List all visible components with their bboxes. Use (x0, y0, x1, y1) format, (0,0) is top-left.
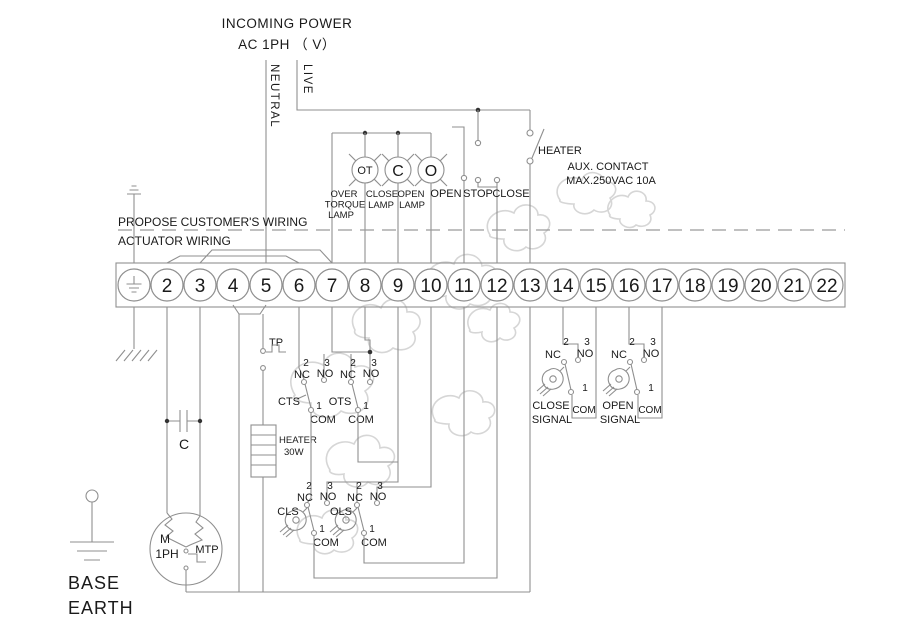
jumper-4-5-icon (233, 305, 266, 314)
torque-switches: 2 3 NC NO CTS 1 COM 2 3 NC NO OTS 1 COM (278, 307, 398, 502)
contact-label: NC (545, 349, 561, 361)
contact-number: 1 (369, 524, 375, 535)
terminal-number: 8 (360, 276, 371, 297)
contact-label: NC (340, 369, 356, 381)
tp-contact-top (261, 349, 266, 354)
lamp-caption: CLOSE (366, 189, 398, 200)
close-signal-label: CLOSE (532, 400, 569, 412)
open-button-contact (461, 175, 466, 180)
wiring-boundary: PROPOSE CUSTOMER'S WIRING ACTUATOR WIRIN… (118, 215, 845, 248)
contact-label: COM (348, 414, 374, 426)
terminal15-com-wire (572, 307, 596, 418)
stop-button-contact-top (475, 140, 480, 145)
contact-label: NO (643, 348, 660, 360)
terminal-number: 19 (717, 276, 738, 297)
contact-number: 2 (350, 358, 356, 369)
contact-label: NO (577, 348, 594, 360)
terminal-number: 18 (684, 276, 705, 297)
terminal-number: 6 (294, 276, 305, 297)
incoming-power-rating: AC 1PH （ V） (238, 37, 336, 52)
contact-number: 2 (356, 481, 362, 492)
aux-contact-title: AUX. CONTACT (567, 161, 648, 173)
mtp-contact-bottom (184, 566, 188, 570)
heater-resistor: HEATER 30W (251, 425, 317, 477)
heater-resistor-hatch-icon (251, 435, 276, 465)
contact-number: 1 (363, 401, 369, 412)
open-button-upper-wire (452, 127, 464, 175)
stop-button-contact-bottom (475, 177, 480, 182)
heater-switch-label: HEATER (538, 145, 582, 157)
contact-label: COM (572, 405, 595, 416)
junction-dot (198, 419, 202, 423)
close-signal-switch: 2 3 NC NO 1 COM CLOSE SIGNAL (532, 307, 596, 426)
indicator-lamps: OT OVER TORQUE LAMP C CLOSE LAMP O OPEN … (325, 131, 447, 263)
heater-switch-contact-bottom (527, 158, 533, 164)
cts-switch: 2 3 NC NO CTS 1 COM (278, 358, 336, 426)
live-label: LIVE (301, 64, 313, 95)
terminal-earth (118, 269, 150, 301)
lamp-symbol: OT (357, 165, 373, 177)
cls-blade (308, 507, 314, 531)
contact-number: 3 (650, 337, 656, 348)
contact-label: NC (611, 349, 627, 361)
contact-label: COM (313, 537, 339, 549)
base-earth-icon (70, 542, 114, 560)
stop-close-link-wire (478, 183, 497, 187)
close-signal-com-contact (569, 390, 574, 395)
push-buttons: OPEN STOP CLOSE (430, 110, 529, 263)
open-signal-label: OPEN (602, 400, 633, 412)
lamp-caption: LAMP (368, 200, 394, 211)
tp-label: TP (269, 337, 283, 349)
terminal-strip: 2 3 4 5 6 7 8 9 10 11 12 13 14 15 16 17 … (116, 250, 845, 307)
contact-number: 1 (582, 383, 588, 394)
lamp-caption: TORQUE (325, 200, 365, 211)
capacitor: C (165, 410, 202, 452)
aux-contact-header: AUX. CONTACT MAX.250VAC 10A (566, 161, 656, 187)
lamp-caption: LAMP (328, 210, 354, 221)
terminal17-com-wire (638, 307, 662, 418)
cls-label: CLS (277, 506, 298, 518)
contact-number: 2 (563, 337, 569, 348)
cts-blade (305, 384, 311, 408)
base-earth: BASE EARTH (68, 490, 134, 618)
terminal-number: 16 (618, 276, 639, 297)
terminal-number: 4 (228, 276, 239, 297)
motor-mtp-label: MTP (195, 544, 218, 556)
contact-label: NC (294, 369, 310, 381)
terminal-number: 10 (420, 276, 441, 297)
motor: M 1PH MTP (150, 513, 222, 592)
close-signal-label: SIGNAL (532, 414, 572, 426)
junction-dot (368, 350, 373, 355)
terminal-number: 7 (327, 276, 338, 297)
aux-signal-switches: 2 3 NC NO 1 COM CLOSE SIGNAL 2 3 NC NO 1… (532, 307, 662, 426)
terminal-number: 5 (261, 276, 272, 297)
terminal-number: 21 (783, 276, 804, 297)
terminal-number: 2 (162, 276, 173, 297)
close-signal-nc-contact (562, 360, 567, 365)
earth-symbol-top-icon (127, 186, 141, 194)
contact-label: NO (320, 491, 337, 503)
contact-label: COM (638, 405, 661, 416)
contact-number: 3 (584, 337, 590, 348)
heater-resistor-power: 30W (284, 447, 304, 458)
motor-winding-right-icon (186, 516, 203, 547)
ots-blade (352, 384, 358, 408)
ols-com-to-terminal11-wire (364, 307, 464, 563)
terminal-number: 20 (750, 276, 771, 297)
incoming-power-title: INCOMING POWER (222, 16, 353, 31)
contact-label: NO (363, 368, 380, 380)
neutral-label: NEUTRAL (268, 64, 280, 128)
actuator-wiring-label: ACTUATOR WIRING (118, 234, 231, 248)
open-signal-blade (631, 364, 637, 390)
ols-com-contact (362, 531, 367, 536)
open-signal-label: SIGNAL (600, 414, 640, 426)
customer-wiring-label: PROPOSE CUSTOMER'S WIRING (118, 215, 307, 229)
cls-com-contact (312, 531, 317, 536)
terminal-number: 12 (486, 276, 507, 297)
capacitor-plates-icon (180, 410, 187, 432)
cam-roller-icon (603, 367, 630, 396)
lamp-caption: LAMP (399, 200, 425, 211)
close-button-contact (494, 177, 499, 182)
cam-roller-icon (537, 367, 564, 396)
terminal16-wire (629, 307, 644, 358)
cts-com-contact (309, 408, 314, 413)
open-signal-switch: 2 3 NC NO 1 COM OPEN SIGNAL (600, 307, 662, 426)
terminal-number: 13 (519, 276, 540, 297)
terminal-number: 17 (651, 276, 672, 297)
mtp-contact-top (184, 549, 188, 553)
ols-label: OLS (330, 506, 352, 518)
contact-number: 1 (316, 401, 322, 412)
jumper-2-6 (167, 256, 299, 263)
ots-no-contact (368, 380, 373, 385)
open-signal-com-contact (635, 390, 640, 395)
capacitor-label: C (179, 436, 189, 452)
contact-number: 2 (303, 358, 309, 369)
terminal-number: 9 (393, 276, 404, 297)
contact-label: COM (310, 414, 336, 426)
lamp-caption: OPEN (398, 189, 425, 200)
wiring-diagram-page: INCOMING POWER AC 1PH （ V） NEUTRAL LIVE … (0, 0, 900, 636)
terminal-number: 22 (816, 276, 837, 297)
aux-contact-rating: MAX.250VAC 10A (566, 175, 656, 187)
close-signal-blade (565, 364, 571, 390)
contact-label: NO (317, 368, 334, 380)
heater-resistor-box-icon (251, 425, 276, 477)
contact-label: NC (347, 492, 363, 504)
heater-switch-contact-top (527, 130, 533, 136)
contact-label: NC (297, 492, 313, 504)
terminal14-wire (563, 307, 578, 358)
base-earth-terminal-icon (86, 490, 98, 502)
motor-circuit: C M 1PH MTP (150, 307, 530, 592)
tp-contact-bottom (261, 366, 266, 371)
lamp-symbol: O (425, 163, 437, 180)
base-earth-label: BASE (68, 573, 120, 593)
motor-phase-label: 1PH (155, 547, 178, 561)
open-signal-nc-contact (628, 360, 633, 365)
terminal-number: 3 (195, 276, 206, 297)
ots-com-contact (356, 408, 361, 413)
terminal-number: 15 (585, 276, 606, 297)
junction-dot (165, 419, 169, 423)
base-earth-label: EARTH (68, 598, 134, 618)
tp-heater-chain: TP HEATER 30W (233, 305, 317, 592)
live-wire (297, 60, 530, 110)
lamp-symbol: C (392, 163, 404, 180)
motor-m-label: M (160, 532, 170, 546)
close-button-label: CLOSE (492, 188, 529, 200)
open-button-label: OPEN (430, 188, 461, 200)
chassis-ground-icon (116, 350, 157, 361)
contact-number: 1 (648, 383, 654, 394)
terminal-number: 11 (454, 276, 474, 297)
terminal10-to-ols-wire (377, 307, 431, 500)
contact-label: NO (370, 491, 387, 503)
ols-blade (358, 507, 364, 531)
contact-number: 2 (306, 481, 312, 492)
contact-label: COM (361, 537, 387, 549)
stop-button-label: STOP (463, 188, 493, 200)
contact-number: 2 (629, 337, 635, 348)
cts-label: CTS (278, 396, 300, 408)
terminal-number: 14 (552, 276, 574, 297)
contact-number: 1 (319, 524, 325, 535)
lamp-caption: OVER (331, 189, 358, 200)
wiring-diagram-canvas: INCOMING POWER AC 1PH （ V） NEUTRAL LIVE … (0, 0, 900, 636)
ots-label: OTS (329, 396, 352, 408)
